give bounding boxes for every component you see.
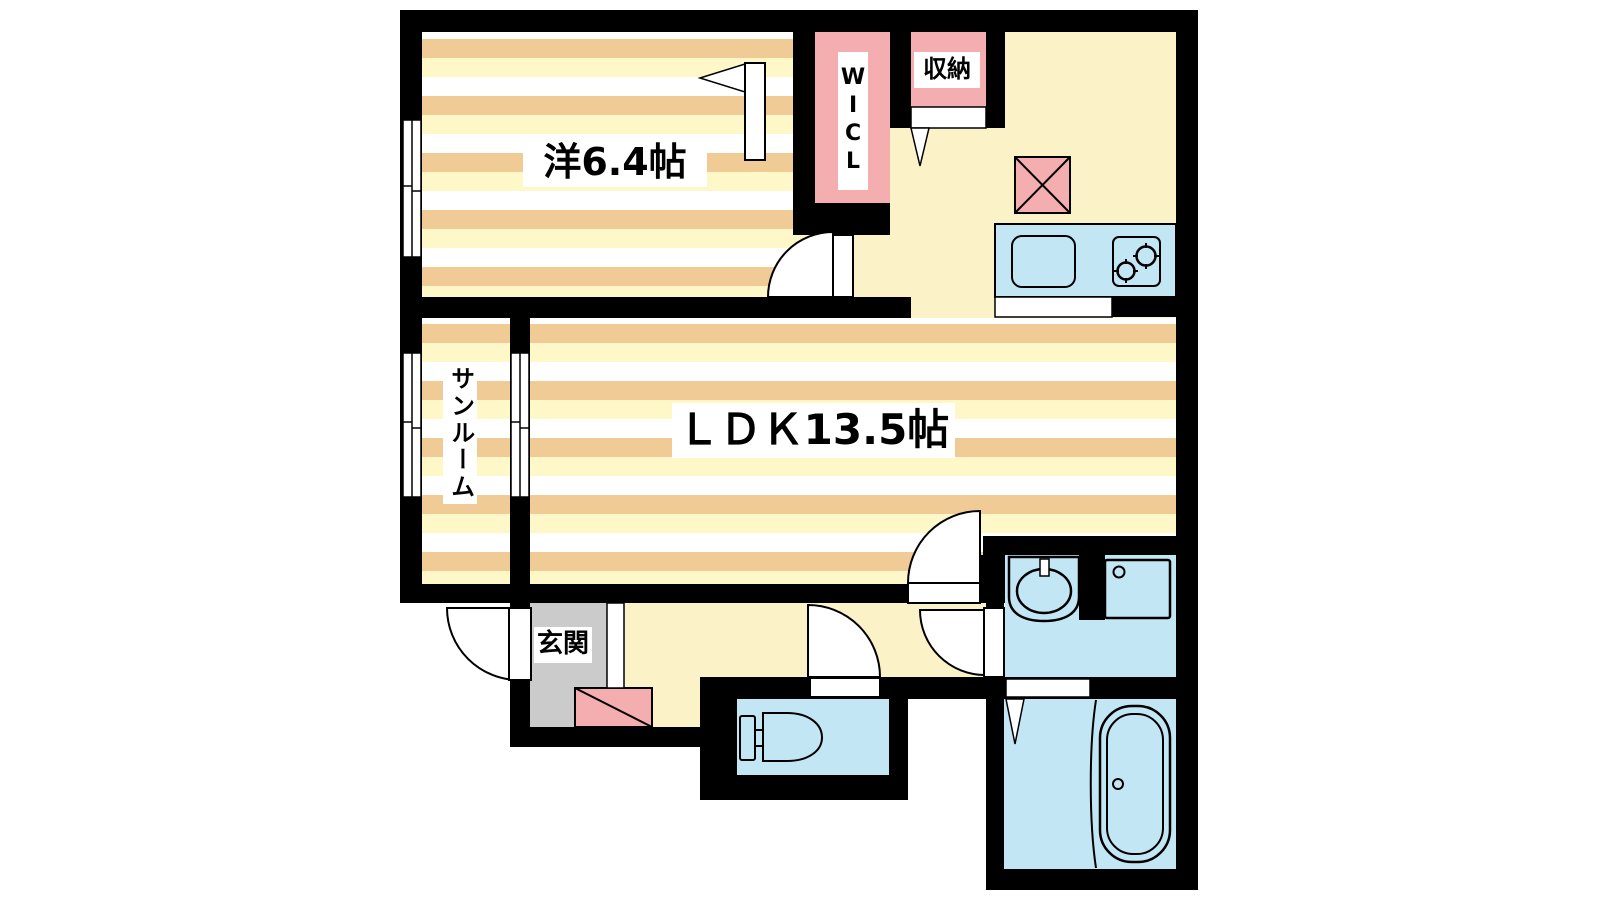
entry-door-leaf xyxy=(509,608,531,680)
ldk-label: ＬＤＫ13.5帖 xyxy=(672,403,955,458)
toilet-door-leaf xyxy=(810,678,880,697)
wall-bottom-right xyxy=(986,869,1198,890)
storage-label: 収納 xyxy=(914,52,980,88)
wall-washroom-stub xyxy=(1079,555,1105,620)
entry-step xyxy=(607,603,624,688)
wall-wic-south xyxy=(793,203,890,235)
toilet-room xyxy=(737,699,889,775)
wall-jog xyxy=(980,555,1005,603)
wic-door-leaf xyxy=(745,63,765,160)
sunroom-label: サンルーム xyxy=(443,362,477,504)
wall-wic-storage xyxy=(890,32,911,128)
wall-right xyxy=(1176,10,1198,890)
wall-washroom-north xyxy=(983,536,1198,555)
washroom-door-leaf xyxy=(984,608,1004,677)
wall-top xyxy=(400,10,1198,32)
entrance-label: 玄関 xyxy=(534,627,592,663)
wall-bedroom-south xyxy=(400,297,911,318)
wall-entrance-south xyxy=(510,727,720,747)
wall-storage-east xyxy=(986,32,1005,128)
bath-sliding-door xyxy=(1006,679,1090,697)
bedroom-door-leaf xyxy=(833,235,853,297)
wall-counter-end xyxy=(1112,296,1177,317)
toilet-floor xyxy=(737,699,889,775)
wall-ldk-south xyxy=(400,584,910,603)
wall-hall-south xyxy=(889,677,986,699)
bedroom-west-window xyxy=(403,120,421,257)
floor-plan: 洋6.4帖 ＬＤＫ13.5帖 サンルーム 玄関 WICL 収納 xyxy=(0,0,1600,900)
ldk-door-leaf xyxy=(908,583,980,603)
storage-door xyxy=(911,107,986,128)
refrigerator-space-icon xyxy=(1015,157,1070,213)
wic-label: WICL xyxy=(838,52,868,190)
counter-front xyxy=(995,297,1112,317)
sunroom-ldk-window xyxy=(511,353,529,497)
shoe-cabinet-icon xyxy=(575,688,652,727)
sunroom-west-window xyxy=(403,353,421,497)
bedroom-label: 洋6.4帖 xyxy=(523,138,707,187)
